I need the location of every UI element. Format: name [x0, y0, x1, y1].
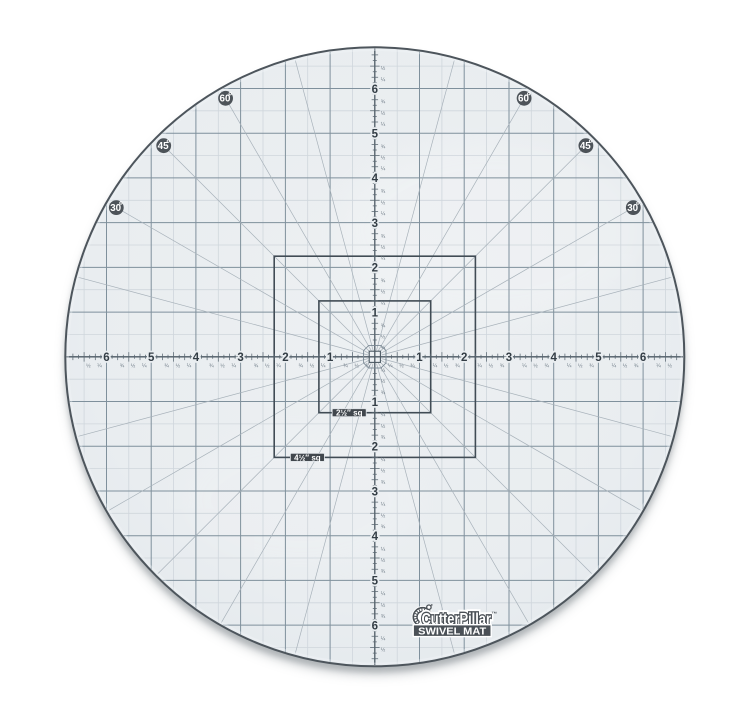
svg-text:4: 4: [372, 173, 379, 185]
svg-text:½: ½: [381, 423, 386, 430]
svg-text:5: 5: [372, 129, 379, 141]
svg-text:½: ½: [381, 199, 386, 206]
svg-text:½: ½: [381, 110, 386, 117]
svg-text:¼: ¼: [522, 363, 527, 369]
svg-text:60: 60: [220, 94, 231, 105]
svg-text:1: 1: [416, 352, 423, 364]
svg-text:½: ½: [310, 362, 315, 369]
svg-text:¼: ¼: [612, 363, 617, 369]
svg-text:¾: ¾: [381, 323, 386, 329]
svg-text:¼: ¼: [187, 363, 192, 369]
svg-text:½: ½: [381, 244, 386, 251]
svg-text:¼: ¼: [321, 363, 326, 369]
svg-text:¾: ¾: [254, 363, 259, 369]
svg-text:5: 5: [148, 352, 155, 364]
svg-text:½: ½: [623, 362, 628, 369]
svg-text:3: 3: [372, 218, 378, 230]
svg-text:¾: ¾: [299, 363, 304, 369]
svg-text:¾: ¾: [381, 100, 386, 106]
svg-text:1: 1: [372, 307, 379, 319]
svg-text:¾: ¾: [381, 279, 386, 285]
svg-text:½: ½: [220, 362, 225, 369]
svg-text:¼: ¼: [381, 301, 386, 307]
svg-text:½: ½: [131, 362, 136, 369]
svg-text:4: 4: [372, 531, 379, 543]
svg-text:¼: ¼: [381, 636, 386, 642]
svg-text:½: ½: [381, 557, 386, 564]
svg-text:5: 5: [595, 352, 602, 364]
svg-text:¼: ¼: [97, 363, 102, 369]
svg-text:¼: ¼: [567, 363, 572, 369]
svg-text:5: 5: [372, 576, 379, 588]
svg-text:½: ½: [381, 468, 386, 475]
svg-text:½: ½: [399, 362, 404, 369]
svg-text:1: 1: [372, 397, 379, 409]
svg-text:¾: ¾: [381, 525, 386, 531]
svg-text:¼: ¼: [276, 363, 281, 369]
svg-text:¼: ¼: [477, 363, 482, 369]
svg-text:½: ½: [668, 362, 673, 369]
svg-text:½: ½: [381, 155, 386, 162]
svg-text:¼: ¼: [142, 363, 147, 369]
svg-text:½: ½: [265, 362, 270, 369]
svg-text:4½″ sq: 4½″ sq: [294, 453, 321, 462]
svg-text:½: ½: [381, 378, 386, 385]
svg-text:¾: ¾: [500, 363, 505, 369]
svg-text:™: ™: [492, 612, 498, 618]
svg-text:½: ½: [381, 65, 386, 72]
svg-text:¾: ¾: [455, 363, 460, 369]
svg-text:¼: ¼: [381, 457, 386, 463]
svg-text:¼: ¼: [381, 256, 386, 262]
svg-text:¼: ¼: [232, 363, 237, 369]
svg-text:1: 1: [327, 352, 334, 364]
svg-text:½: ½: [381, 289, 386, 296]
svg-text:6: 6: [103, 352, 109, 364]
svg-text:¾: ¾: [381, 189, 386, 195]
svg-text:¾: ¾: [209, 363, 214, 369]
svg-text:2: 2: [461, 352, 467, 364]
svg-text:2: 2: [372, 442, 378, 454]
svg-text:6: 6: [640, 352, 646, 364]
svg-text:¾: ¾: [589, 363, 594, 369]
svg-text:¼: ¼: [381, 413, 386, 419]
svg-text:¾: ¾: [381, 614, 386, 620]
svg-text:¾: ¾: [120, 363, 125, 369]
svg-text:¾: ¾: [410, 363, 415, 369]
svg-text:4: 4: [193, 352, 200, 364]
svg-text:45: 45: [580, 141, 591, 152]
svg-text:¼: ¼: [381, 592, 386, 598]
svg-text:¾: ¾: [381, 234, 386, 240]
svg-text:60: 60: [518, 94, 529, 105]
svg-text:3: 3: [506, 352, 512, 364]
svg-text:¼: ¼: [388, 363, 393, 369]
svg-text:30: 30: [110, 203, 121, 214]
svg-text:½: ½: [381, 512, 386, 519]
svg-text:½: ½: [578, 362, 583, 369]
svg-text:¼: ¼: [381, 502, 386, 508]
svg-text:3: 3: [372, 486, 378, 498]
svg-text:½: ½: [381, 647, 386, 654]
svg-text:½: ½: [354, 362, 359, 369]
svg-text:2: 2: [372, 263, 378, 275]
svg-text:½: ½: [533, 362, 538, 369]
svg-text:¾: ¾: [164, 363, 169, 369]
svg-text:¾: ¾: [381, 569, 386, 575]
svg-text:¼: ¼: [656, 363, 661, 369]
svg-text:¼: ¼: [381, 212, 386, 218]
svg-text:½: ½: [489, 362, 494, 369]
svg-text:6: 6: [372, 84, 378, 96]
svg-text:6: 6: [372, 620, 378, 632]
svg-text:¾: ¾: [545, 363, 550, 369]
svg-text:30: 30: [627, 203, 638, 214]
svg-text:SWIVEL MAT: SWIVEL MAT: [418, 625, 487, 637]
svg-text:2½″ sq: 2½″ sq: [336, 409, 363, 418]
svg-text:¾: ¾: [381, 480, 386, 486]
svg-text:½: ½: [86, 362, 91, 369]
svg-text:¼: ¼: [433, 363, 438, 369]
svg-text:½: ½: [444, 362, 449, 369]
svg-text:½: ½: [176, 362, 181, 369]
svg-text:¼: ¼: [381, 167, 386, 173]
svg-text:½: ½: [381, 333, 386, 340]
svg-text:¼: ¼: [381, 547, 386, 553]
svg-text:4: 4: [550, 352, 557, 364]
svg-text:¼: ¼: [381, 77, 386, 83]
svg-text:45: 45: [158, 141, 169, 152]
svg-text:¾: ¾: [381, 390, 386, 396]
svg-text:¾: ¾: [381, 435, 386, 441]
svg-text:3: 3: [237, 352, 243, 364]
svg-text:¼: ¼: [381, 122, 386, 128]
svg-text:¾: ¾: [343, 363, 348, 369]
svg-text:½: ½: [381, 602, 386, 609]
svg-text:¾: ¾: [634, 363, 639, 369]
svg-text:2: 2: [282, 352, 288, 364]
svg-text:¾: ¾: [381, 144, 386, 150]
svg-text:¼: ¼: [381, 368, 386, 374]
